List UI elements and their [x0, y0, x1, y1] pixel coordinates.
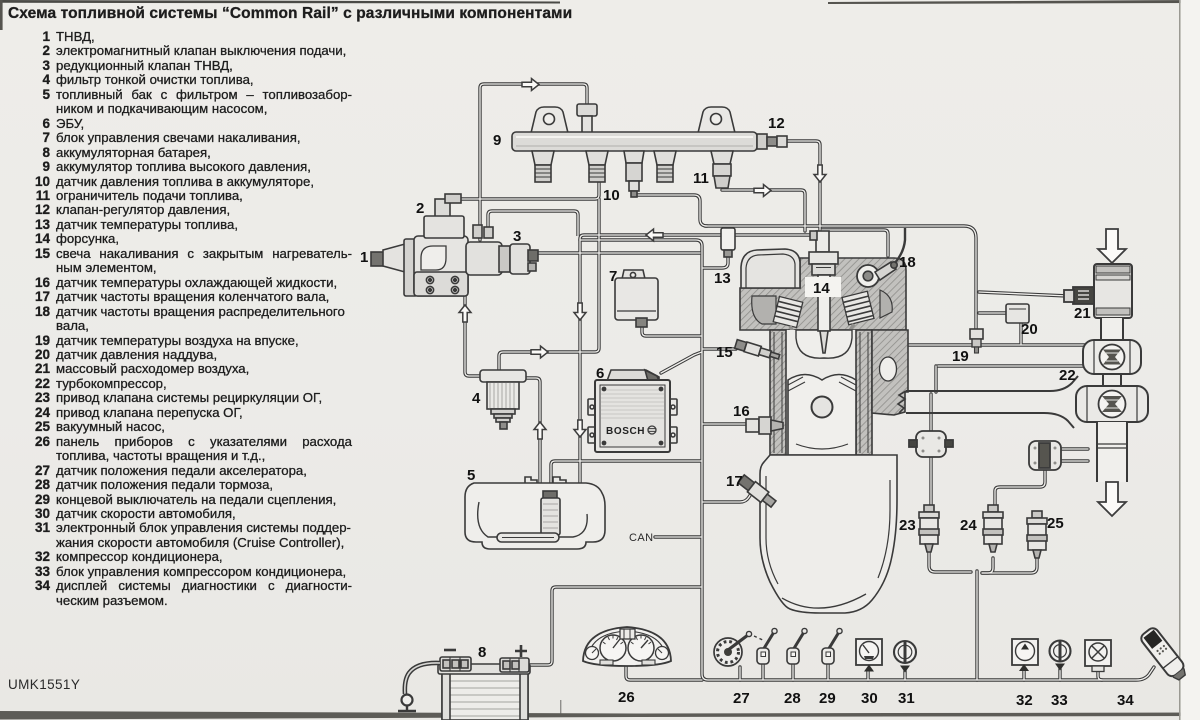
svg-text:10: 10 [603, 187, 620, 204]
svg-text:8: 8 [478, 644, 486, 661]
svg-text:20: 20 [1021, 321, 1038, 338]
svg-text:26: 26 [618, 689, 635, 706]
svg-text:27: 27 [733, 690, 750, 707]
svg-text:13: 13 [714, 270, 731, 287]
svg-text:5: 5 [467, 467, 475, 484]
svg-text:19: 19 [952, 348, 969, 365]
svg-text:23: 23 [899, 517, 916, 534]
svg-text:31: 31 [898, 690, 915, 707]
svg-text:2: 2 [416, 200, 424, 217]
svg-text:1: 1 [360, 249, 368, 266]
svg-text:6: 6 [596, 365, 604, 382]
svg-text:32: 32 [1016, 692, 1033, 709]
svg-text:18: 18 [899, 254, 916, 271]
svg-text:16: 16 [733, 403, 750, 420]
svg-text:12: 12 [768, 115, 785, 132]
svg-text:9: 9 [493, 132, 501, 149]
svg-text:17: 17 [726, 473, 743, 490]
svg-text:BOSCH: BOSCH [606, 426, 645, 437]
svg-text:21: 21 [1074, 305, 1091, 322]
svg-text:3: 3 [513, 228, 521, 245]
svg-text:14: 14 [813, 280, 830, 297]
svg-text:29: 29 [819, 690, 836, 707]
svg-text:7: 7 [609, 268, 617, 285]
svg-text:11: 11 [693, 170, 709, 187]
svg-text:33: 33 [1051, 692, 1068, 709]
svg-text:30: 30 [861, 690, 878, 707]
svg-text:15: 15 [716, 344, 733, 361]
svg-text:28: 28 [784, 690, 801, 707]
svg-text:22: 22 [1059, 367, 1076, 384]
svg-text:4: 4 [472, 390, 481, 407]
svg-text:34: 34 [1117, 692, 1134, 709]
svg-text:25: 25 [1047, 515, 1064, 532]
svg-text:CAN: CAN [629, 532, 653, 544]
svg-text:24: 24 [960, 517, 977, 534]
